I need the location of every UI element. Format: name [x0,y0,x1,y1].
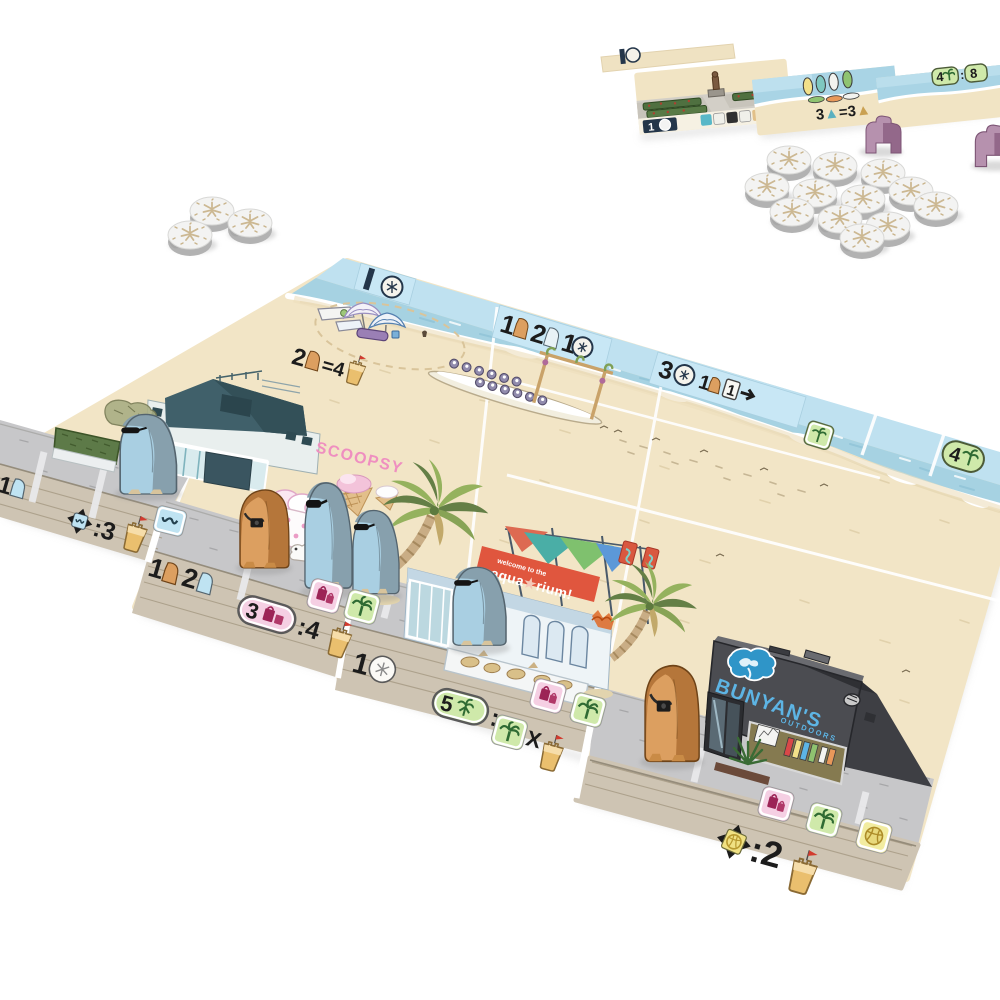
svg-text:1: 1 [648,121,655,134]
